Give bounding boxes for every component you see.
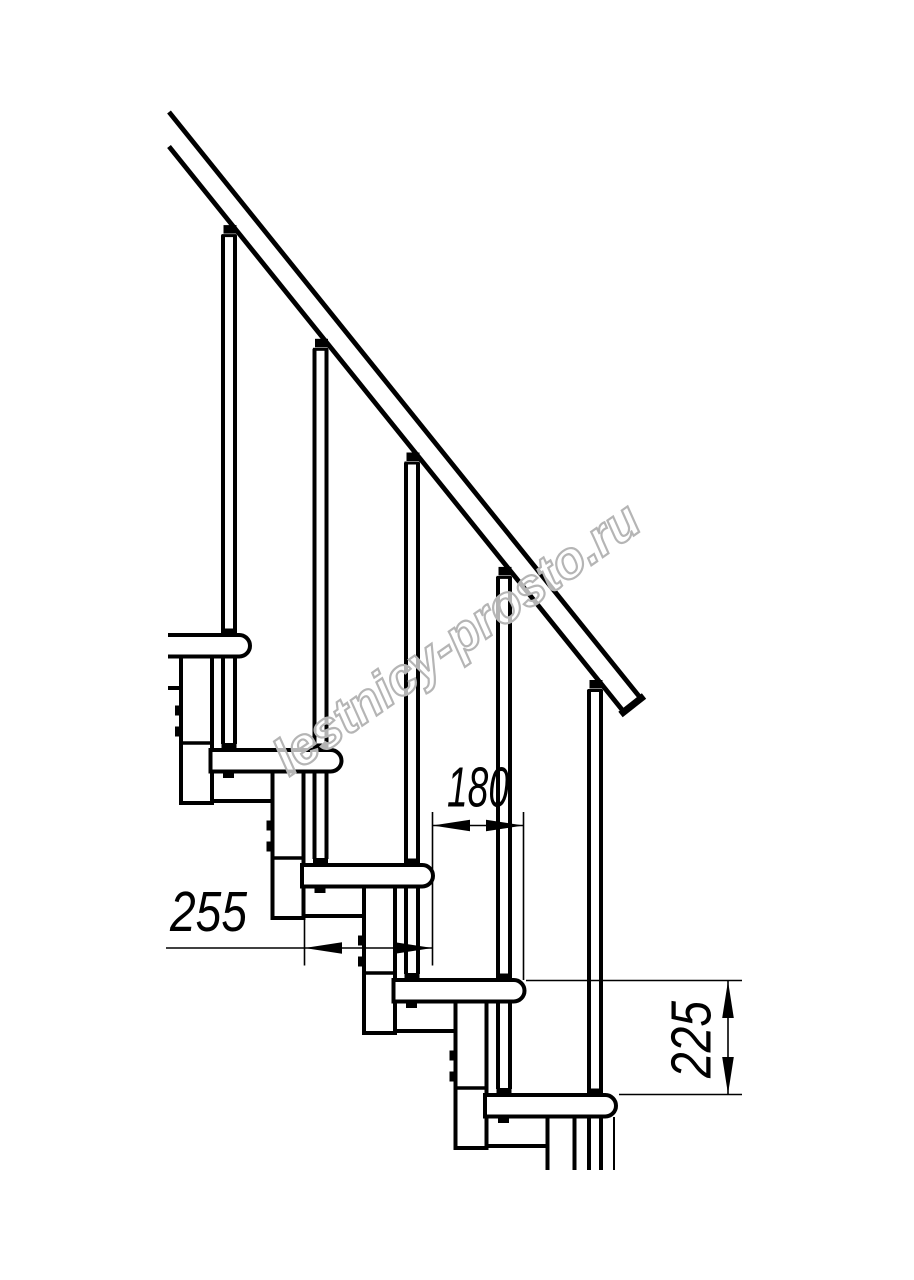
svg-text:255: 255: [169, 880, 247, 944]
svg-text:225: 225: [660, 1001, 724, 1079]
svg-text:180: 180: [447, 756, 509, 820]
